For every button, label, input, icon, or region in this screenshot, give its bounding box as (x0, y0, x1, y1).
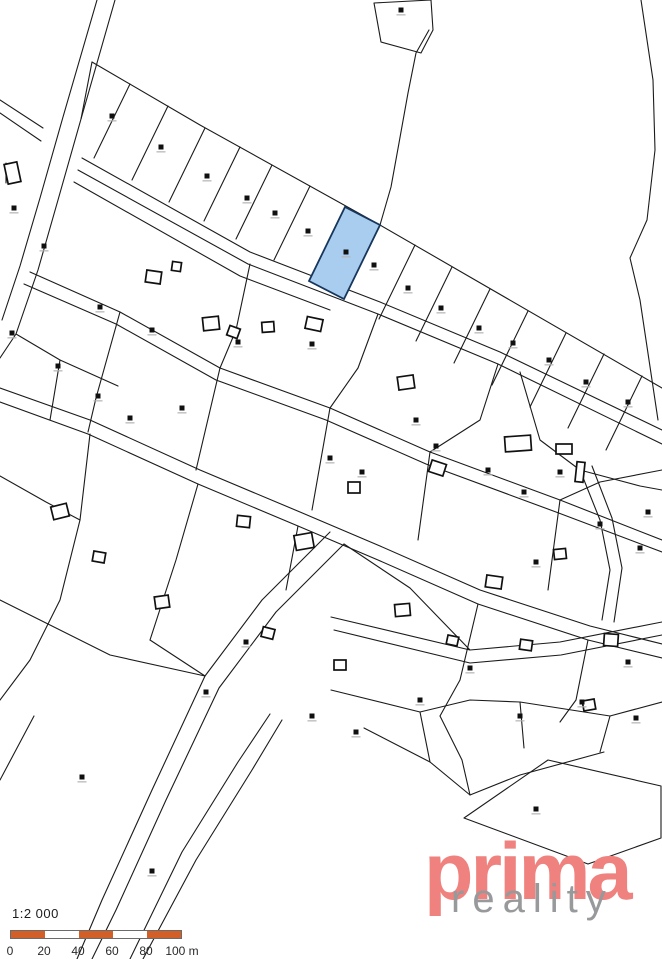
parcel-number-smudge (636, 552, 645, 554)
parcel-number-smudge (148, 875, 157, 877)
parcel-marker (328, 456, 333, 461)
prima-reality-logo: prima reality (424, 836, 662, 919)
cadastral-map-canvas (0, 0, 662, 959)
parcel-number-smudge (437, 312, 446, 314)
parcel-marker (354, 730, 359, 735)
parcel-boundary (220, 264, 250, 368)
parcel-boundary (88, 312, 120, 432)
building-footprint (395, 603, 411, 616)
parcel-number-smudge (308, 348, 317, 350)
parcel-marker (418, 698, 423, 703)
parcel-boundary (274, 186, 310, 260)
scalebar-segment (11, 931, 45, 938)
building-footprint (519, 639, 532, 651)
building-footprint (334, 660, 346, 670)
parcel-number-smudge (108, 120, 117, 122)
building-footprint (505, 435, 532, 452)
parcel-marker (580, 700, 585, 705)
parcel-number-smudge (556, 476, 565, 478)
building-footprint (485, 575, 503, 589)
parcel-boundary (600, 716, 610, 752)
parcel-marker (406, 286, 411, 291)
parcel-number-smudge (304, 235, 313, 237)
parcel-number-smudge (157, 151, 166, 153)
parcel-number-smudge (358, 476, 367, 478)
parcel-boundary (204, 147, 240, 221)
parcel-number-smudge (94, 400, 103, 402)
parcel-number-smudge (40, 250, 49, 252)
parcel-marker (180, 406, 185, 411)
parcel-marker (244, 640, 249, 645)
building-footprint (294, 533, 314, 551)
parcel-number-smudge (271, 217, 280, 219)
building-footprint (154, 595, 170, 609)
parcel-boundary (143, 720, 282, 959)
parcel-number-smudge (416, 704, 425, 706)
scalebar-tick-labels: 020406080100 m (0, 944, 260, 959)
parcel-number-smudge (404, 292, 413, 294)
parcel-number-smudge (596, 528, 605, 530)
parcel-boundary (418, 452, 430, 540)
parcel-marker (626, 400, 631, 405)
parcel-number-smudge (202, 696, 211, 698)
parcel-number-smudge (532, 813, 541, 815)
parcel-boundary (78, 170, 662, 444)
scalebar-tick-label: 80 (139, 944, 152, 958)
parcel-marker (204, 690, 209, 695)
parcel-number-smudge (484, 474, 493, 476)
parcel-number-smudge (203, 180, 212, 182)
parcel-marker (310, 714, 315, 719)
building-footprint (604, 634, 619, 647)
building-footprint (92, 551, 106, 563)
parcel-boundary (330, 314, 378, 408)
parcel-marker (159, 145, 164, 150)
parcel-marker (558, 470, 563, 475)
parcel-boundary (0, 402, 662, 658)
parcel-boundary (132, 106, 168, 180)
parcel-boundary (0, 388, 662, 644)
parcel-boundary (50, 360, 60, 420)
parcel-boundary (364, 728, 470, 795)
parcel-boundary (16, 334, 118, 386)
building-footprint (261, 627, 275, 640)
parcel-marker (399, 8, 404, 13)
parcel-number-smudge (532, 566, 541, 568)
parcel-boundary (606, 376, 642, 450)
scalebar-segment (147, 931, 181, 938)
parcel-number-smudge (308, 720, 317, 722)
parcel-boundary (0, 113, 41, 141)
building-footprint (51, 503, 70, 519)
parcel-boundary (331, 690, 662, 716)
parcel-number-smudge (516, 720, 525, 722)
parcel-marker (306, 229, 311, 234)
parcel-boundary (520, 372, 662, 490)
parcel-number-smudge (342, 256, 351, 258)
scalebar-segment (113, 931, 147, 938)
building-footprint (202, 316, 219, 331)
parcel-number-smudge (352, 736, 361, 738)
parcel-marker (98, 305, 103, 310)
building-footprint (554, 548, 567, 559)
parcel-number-smudge (126, 422, 135, 424)
parcel-marker (434, 444, 439, 449)
building-footprint (446, 635, 459, 646)
parcel-boundary (520, 702, 524, 748)
parcel-marker (310, 342, 315, 347)
parcel-boundary (81, 62, 92, 119)
parcel-number-smudge (243, 202, 252, 204)
parcel-marker (468, 666, 473, 671)
parcel-marker (344, 250, 349, 255)
parcel-boundary (344, 544, 470, 650)
parcel-number-smudge (432, 450, 441, 452)
scalebar-tick-label: 0 (7, 944, 14, 958)
parcel-marker (598, 522, 603, 527)
parcel-number-smudge (8, 337, 17, 339)
parcel-marker (245, 196, 250, 201)
parcel-marker (518, 714, 523, 719)
parcel-boundary (548, 500, 560, 590)
parcel-boundary (236, 165, 272, 239)
parcel-boundary (420, 712, 430, 762)
parcel-number-smudge (397, 14, 406, 16)
parcel-boundary (430, 364, 498, 452)
parcel-number-smudge (475, 332, 484, 334)
parcel-number-smudge (242, 646, 251, 648)
building-footprint (227, 325, 241, 338)
scalebar-segment (45, 931, 79, 938)
parcel-boundary (0, 100, 43, 128)
scale-ratio-label: 1:2 000 (12, 906, 260, 921)
parcel-marker (522, 490, 527, 495)
building-footprint (397, 375, 415, 390)
parcel-marker (634, 716, 639, 721)
parcel-marker (638, 546, 643, 551)
parcel-marker (150, 328, 155, 333)
parcel-number-smudge (326, 462, 335, 464)
building-footprint (262, 322, 275, 333)
parcel-boundary (0, 716, 34, 780)
parcel-boundary (580, 470, 610, 620)
parcel-number-smudge (148, 334, 157, 336)
parcel-marker (626, 660, 631, 665)
parcel-boundary (454, 289, 490, 363)
building-footprint (556, 444, 572, 454)
parcel-number-smudge (624, 666, 633, 668)
parcel-number-smudge (234, 346, 243, 348)
parcel-marker (12, 206, 17, 211)
scalebar-graphic (10, 930, 182, 939)
scalebar-segment (79, 931, 113, 938)
parcel-boundary (568, 354, 604, 428)
parcel-number-smudge (78, 781, 87, 783)
parcel-number-smudge (578, 706, 587, 708)
building-footprint (575, 462, 585, 483)
parcel-number-smudge (412, 424, 421, 426)
parcel-number-smudge (96, 311, 105, 313)
parcel-marker (547, 358, 552, 363)
parcel-marker (477, 326, 482, 331)
building-footprint (145, 270, 162, 284)
parcel-marker (128, 416, 133, 421)
parcel-boundary (0, 434, 90, 700)
parcel-boundary (169, 128, 205, 202)
scalebar-tick-label: 40 (71, 944, 84, 958)
parcel-marker (584, 380, 589, 385)
parcel-number-smudge (632, 722, 641, 724)
building-footprint (171, 261, 181, 271)
parcel-marker (273, 211, 278, 216)
parcel-boundary (379, 245, 415, 319)
parcel-marker (236, 340, 241, 345)
parcel-number-smudge (644, 516, 653, 518)
scalebar-tick-label: 100 m (165, 944, 198, 958)
parcel-marker (414, 418, 419, 423)
parcel-marker (486, 468, 491, 473)
scalebar-tick-label: 60 (105, 944, 118, 958)
parcel-boundary (196, 368, 220, 470)
parcel-number-smudge (520, 496, 529, 498)
building-footprint (236, 515, 250, 527)
parcel-marker (205, 174, 210, 179)
parcel-marker (150, 869, 155, 874)
parcel-boundary (380, 30, 429, 225)
parcel-boundary (530, 333, 566, 407)
parcel-marker (360, 470, 365, 475)
building-footprint (429, 460, 447, 476)
parcel-boundary (630, 0, 658, 420)
parcel-number-smudge (582, 386, 591, 388)
building-footprint (348, 482, 360, 493)
parcel-marker (110, 114, 115, 119)
parcel-boundary (150, 484, 198, 640)
parcel-boundary (150, 640, 205, 676)
parcel-marker (42, 244, 47, 249)
parcel-boundary (592, 466, 622, 622)
parcel-marker (96, 394, 101, 399)
parcel-number-smudge (466, 672, 475, 674)
parcel-number-smudge (370, 269, 379, 271)
building-footprint (4, 162, 21, 184)
parcel-number-smudge (624, 406, 633, 408)
parcel-boundary (0, 600, 205, 676)
parcel-marker (534, 807, 539, 812)
parcel-boundary (82, 158, 662, 430)
parcel-marker (10, 331, 15, 336)
parcel-boundary (74, 182, 330, 310)
parcel-boundary (130, 714, 270, 959)
scalebar-tick-label: 20 (37, 944, 50, 958)
parcel-number-smudge (10, 212, 19, 214)
parcel-marker (439, 306, 444, 311)
parcel-boundary (30, 272, 662, 540)
parcel-number-smudge (178, 412, 187, 414)
parcel-boundary (92, 544, 344, 959)
parcel-marker (646, 510, 651, 515)
parcel-marker (372, 263, 377, 268)
parcel-boundary (2, 0, 97, 320)
parcel-boundary (24, 284, 662, 552)
parcel-number-smudge (545, 364, 554, 366)
logo-wordmark-reality: reality (451, 879, 662, 919)
parcel-boundary (470, 752, 604, 795)
parcel-boundary (312, 408, 330, 510)
parcel-marker (511, 341, 516, 346)
parcel-marker (56, 364, 61, 369)
parcel-marker (534, 560, 539, 565)
cadastral-map-image: 1:2 000 020406080100 m prima reality (0, 0, 662, 959)
parcel-number-smudge (509, 347, 518, 349)
map-scalebar: 1:2 000 020406080100 m (0, 906, 260, 921)
parcel-number-smudge (54, 370, 63, 372)
parcel-marker (80, 775, 85, 780)
building-footprint (305, 316, 323, 331)
